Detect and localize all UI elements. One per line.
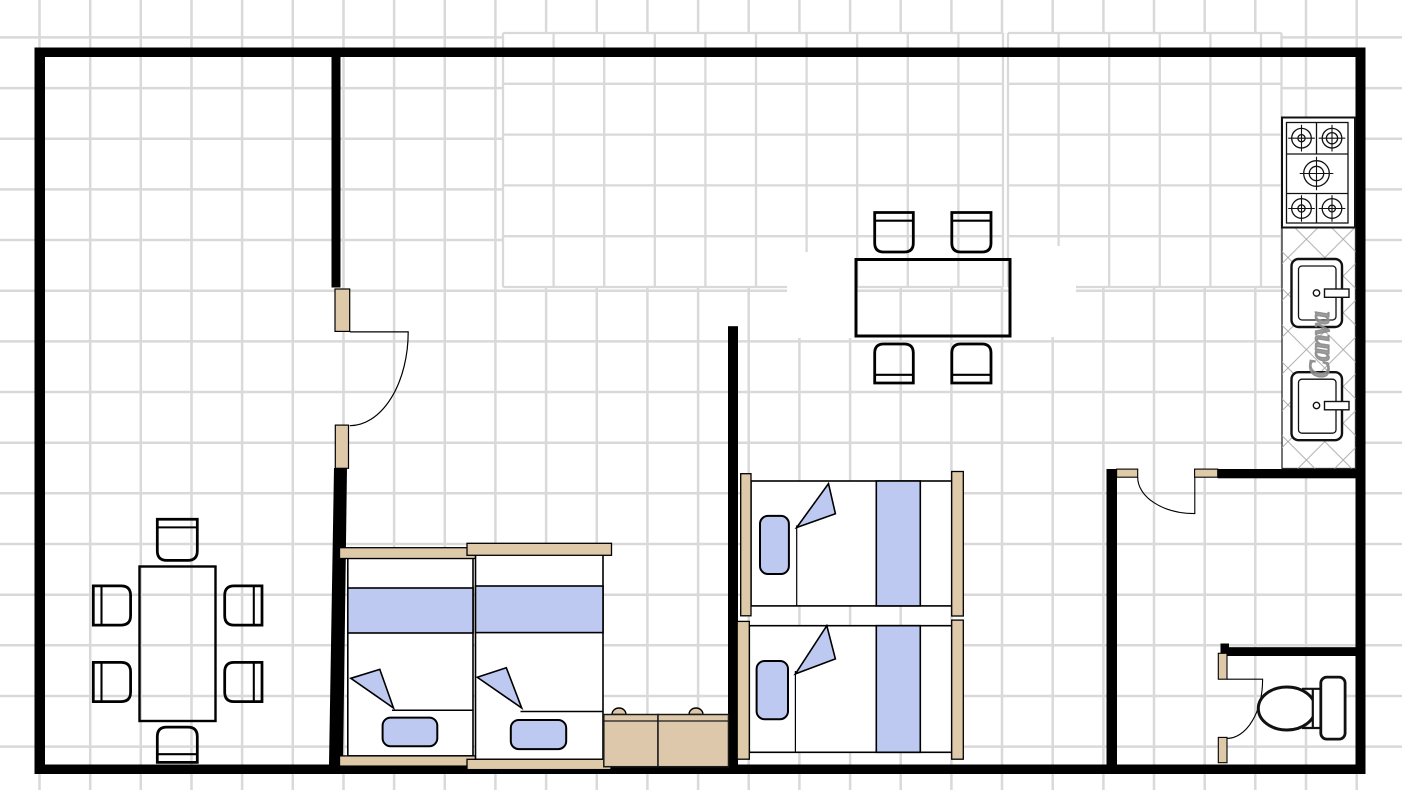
svg-text:Canva: Canva: [1303, 311, 1336, 378]
